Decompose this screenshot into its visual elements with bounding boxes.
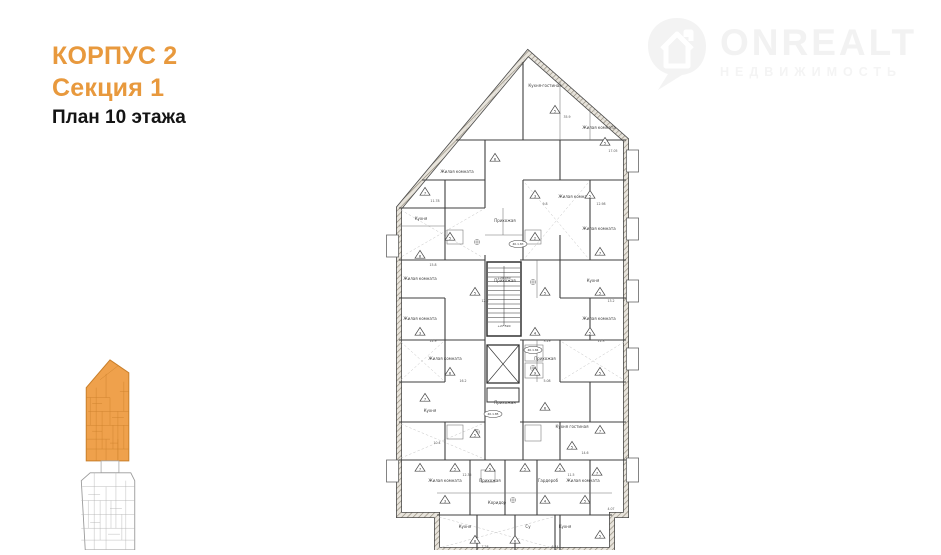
room-number: 5 [449,236,451,240]
elevator-shaft [487,345,519,402]
room-area: 12.98 [596,202,605,206]
room-area: 11.5 [567,473,574,477]
minimap-active-section [86,360,129,461]
room-number: 5 [599,534,601,538]
elevation-mark: +29.030 [497,276,510,280]
room-number: 5 [571,445,573,449]
room-number: 5 [559,467,561,471]
plan-title-block: КОРПУС 2 Секция 1 План 10 этажа [52,44,186,127]
room-label: Жилая комната [566,478,600,483]
room-label: Кухня [559,524,572,529]
room-number: 2 [534,236,536,240]
logo-text: ONREALT НЕДВИЖИМОСТЬ [720,16,917,79]
room-number: 5 [524,467,526,471]
room-label: Жилая комната [428,478,462,483]
logo-tagline: НЕДВИЖИМОСТЬ [720,65,917,79]
room-number: 7 [424,397,426,401]
room-label: Кухня [459,524,472,529]
apartment-stamp-text: 40.1.85 [487,412,498,416]
room-area: 12.5 [481,299,488,303]
room-number: 5 [474,291,476,295]
room-area: 5.08 [543,379,550,383]
room-number: 7 [424,191,426,195]
room-label: Прихожая [494,218,516,223]
room-label: Жилая комната [582,226,616,231]
room-number: 5 [589,331,591,335]
room-label: Коридор [488,500,507,505]
room-number: 7 [419,467,421,471]
room-number: 5 [489,467,491,471]
floor-plan-title: План 10 этажа [52,108,186,127]
room-label: Прихожая [479,478,501,483]
room-area: 7.28 [481,545,488,549]
room-number: 5 [599,371,601,375]
building-minimap [80,352,140,550]
room-label: Кухня [424,408,437,413]
apartment-stamp-text: 40.1.83 [512,242,523,246]
room-label: Жилая комната [403,276,437,281]
logo-brand: ONREALT [720,24,917,61]
onrealt-watermark-logo: ONREALT НЕДВИЖИМОСТЬ [644,16,924,94]
room-label: Прихожая [534,356,556,361]
room-number: 5 [584,499,586,503]
map-pin-house-icon [644,16,710,92]
room-number: 5 [474,433,476,437]
room-number: 3 [444,499,446,503]
room-area: 4.07 [607,507,614,511]
section-title: Секция 1 [52,76,186,101]
room-area: 35.9 [563,115,570,119]
room-area: 6.44 [551,545,558,549]
room-number: 3 [534,194,536,198]
minimap-inactive-section [81,473,134,550]
room-number: 5 [454,467,456,471]
floor-plan-svg: Кухня-гостинаяЖилая комнатаЖилая комната… [385,30,647,550]
room-label: Гардероб [538,478,559,483]
room-area: 16.2 [459,379,466,383]
room-number: 7 [599,251,601,255]
room-area: 13.2 [607,299,614,303]
room-area: 14.6 [581,451,588,455]
room-label: Жилая комната [582,316,616,321]
room-area: 10.4 [433,441,440,445]
room-number: 5 [544,291,546,295]
room-number: 3 [419,331,421,335]
room-label: Прихожая [494,400,516,405]
room-area: 17.05 [608,149,617,153]
room-number: 5 [554,109,556,113]
room-number: 7 [599,429,601,433]
room-label: Су [525,524,531,529]
minimap-connector [101,461,119,473]
room-label: Кухня [415,216,428,221]
room-area: 12.9 [429,339,436,343]
room-label: Жилая комната [403,316,437,321]
room-label: Жилая комната [428,356,462,361]
room-label: Кухня [587,278,600,283]
elevation-mark: +27.590 [497,324,510,328]
room-number: 5 [589,194,591,198]
apartment-stamp-text: 40.1.84 [527,348,538,352]
room-label: Жилая комната [440,169,474,174]
room-area: 15.8 [429,263,436,267]
room-area: 3.29 [543,339,550,343]
room-label: Кухня-гостиная [528,83,562,88]
room-area: 11.3 [597,339,604,343]
minimap-svg [80,352,140,550]
room-number: 5 [604,141,606,145]
listing-image-page: { "header": { "korpus": "КОРПУС 2", "sek… [0,0,941,550]
room-number: 5 [599,291,601,295]
room-area: 11.78 [430,199,439,203]
room-number: 7 [596,471,598,475]
room-area: 9.8 [542,202,547,206]
room-label: Жилая комната [582,125,616,130]
room-label: Кухня гостиная [555,424,589,429]
room-area: 12.35 [462,473,471,477]
floor-plan: Кухня-гостинаяЖилая комнатаЖилая комната… [385,30,647,550]
korpus-title: КОРПУС 2 [52,44,186,69]
